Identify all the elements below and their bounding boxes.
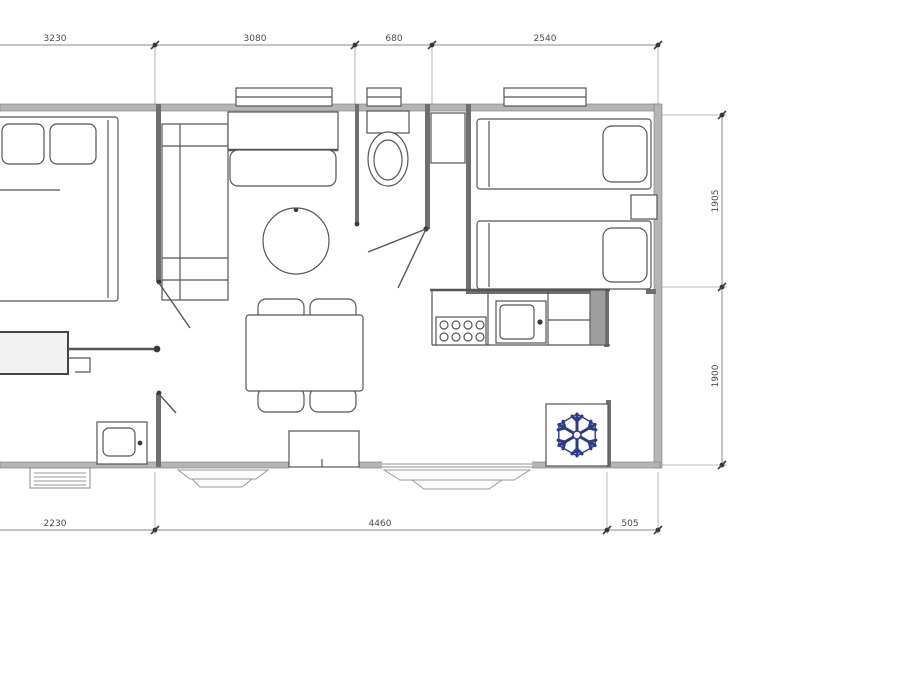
- dimension-chain-bottom: 2230 4460 505: [0, 472, 662, 534]
- sliding-door-opening: [382, 461, 532, 469]
- shower-room: [0, 332, 176, 464]
- round-table: [263, 208, 329, 274]
- window-living: [236, 88, 332, 106]
- floor-plan-page: 3230 3080 680 2540 1905 1900 2230 4460 5…: [0, 0, 900, 675]
- master-bedroom: [0, 117, 228, 328]
- pillow: [603, 126, 647, 182]
- entry-steps-right: [384, 470, 530, 489]
- door-shower-room: [159, 394, 176, 413]
- toilet-cistern: [367, 111, 409, 133]
- windows: [236, 88, 586, 106]
- fridge-tall-unit: [590, 290, 606, 345]
- vanity-wardrobe: [0, 332, 160, 374]
- wardrobe: [162, 124, 228, 300]
- dim-top-3: 680: [385, 34, 402, 44]
- dim-bottom-1: 2230: [44, 519, 67, 529]
- dim-right-1: 1905: [711, 190, 721, 213]
- sink: [496, 301, 546, 343]
- ac-unit: [546, 404, 608, 466]
- utility-cabinet: [431, 113, 465, 163]
- sofa: [228, 112, 338, 186]
- dim-top-4: 2540: [534, 34, 557, 44]
- dim-top-1: 3230: [44, 34, 67, 44]
- entry-steps-left: [178, 470, 268, 487]
- wall-twin-bedroom-bottom-stub: [646, 289, 656, 294]
- dimension-chain-right: 1905 1900: [662, 111, 727, 469]
- washbasin: [97, 422, 147, 464]
- faucet: [537, 319, 542, 324]
- chair: [310, 388, 356, 412]
- stove: [436, 317, 486, 345]
- label-box: [30, 468, 90, 488]
- living-area: [228, 112, 363, 412]
- twin-bed-1: [477, 119, 651, 189]
- nightstand: [631, 195, 657, 219]
- door-wc: [368, 226, 429, 288]
- twin-bed-2: [477, 221, 651, 289]
- wc-room: [367, 111, 465, 288]
- dim-top-2: 3080: [244, 34, 267, 44]
- dining-table: [246, 315, 363, 391]
- entry-door-leaf: [289, 431, 359, 467]
- twin-bedroom: [477, 119, 657, 289]
- window-wc: [367, 88, 401, 106]
- wall-twin-bedroom-left: [466, 104, 471, 294]
- floor-plan-drawing: 3230 3080 680 2540 1905 1900 2230 4460 5…: [0, 0, 900, 675]
- wall-master-bedroom: [156, 104, 161, 282]
- dim-right-2: 1900: [711, 364, 721, 387]
- wall-end-dot: [355, 222, 360, 227]
- wall-shower-room: [156, 393, 161, 467]
- chair: [258, 388, 304, 412]
- wall-wc-right: [425, 104, 430, 229]
- dim-bottom-3: 505: [621, 519, 638, 529]
- dining-set: [246, 299, 363, 412]
- wall-wc-left: [355, 104, 359, 224]
- wall-right: [654, 104, 662, 468]
- kitchen: [430, 290, 610, 345]
- pillow: [50, 124, 96, 164]
- dim-bottom-2: 4460: [369, 519, 392, 529]
- pillow: [603, 228, 647, 282]
- window-bedroom: [504, 88, 586, 106]
- pillow: [2, 124, 44, 164]
